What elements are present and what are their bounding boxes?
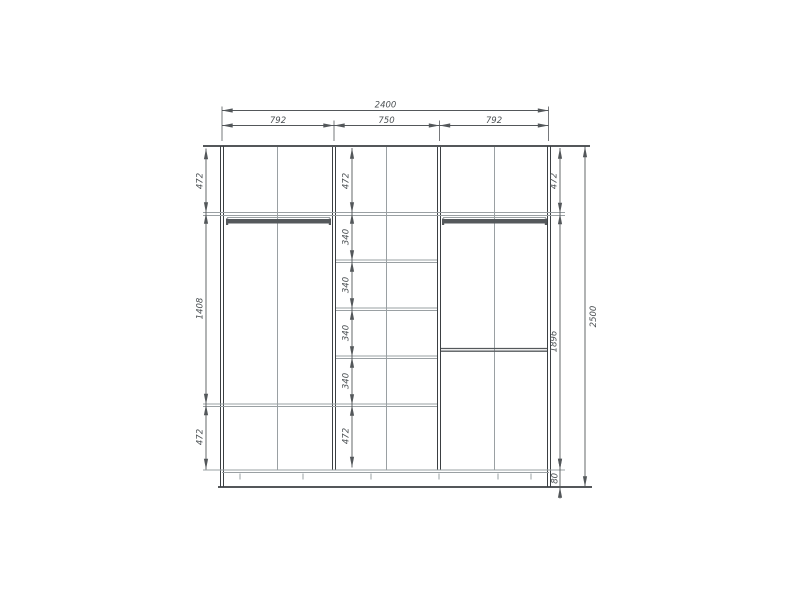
dim-label-overall-width: 2400 (375, 101, 397, 111)
left-hanging-rod (227, 219, 330, 224)
dim-label-center-3: 340 (342, 277, 352, 293)
dim-label-left-middle: 1408 (196, 297, 206, 319)
dim-label-right-top: 472 (550, 173, 560, 189)
technical-drawing-page: 2400 792 750 792 472 1408 472 472 340 34… (0, 0, 800, 600)
dim-label-right-middle: 1896 (550, 330, 560, 352)
dim-label-center-6: 472 (342, 428, 352, 444)
dim-label-section-width-center: 750 (378, 116, 394, 126)
dimension-labels: 2400 792 750 792 472 1408 472 472 340 34… (196, 101, 600, 484)
dim-label-section-width-left: 792 (270, 116, 286, 126)
dim-label-center-5: 340 (342, 373, 352, 389)
dim-label-left-top: 472 (196, 173, 206, 189)
wardrobe-elevation-drawing: 2400 792 750 792 472 1408 472 472 340 34… (0, 0, 800, 600)
right-hanging-rod (443, 219, 546, 224)
dim-label-left-bottom: 472 (196, 429, 206, 445)
cabinet-outline (203, 146, 590, 487)
shelf-lines (203, 213, 565, 407)
dim-label-center-4: 340 (342, 325, 352, 341)
dim-label-center-1: 472 (342, 173, 352, 189)
dim-label-overall-height: 2500 (589, 306, 599, 328)
dim-label-section-width-right: 792 (486, 116, 502, 126)
plinth-base (203, 470, 592, 487)
dim-label-plinth-height: 80 (551, 473, 561, 484)
dimension-lines (206, 107, 585, 499)
dim-label-center-2: 340 (342, 229, 352, 245)
